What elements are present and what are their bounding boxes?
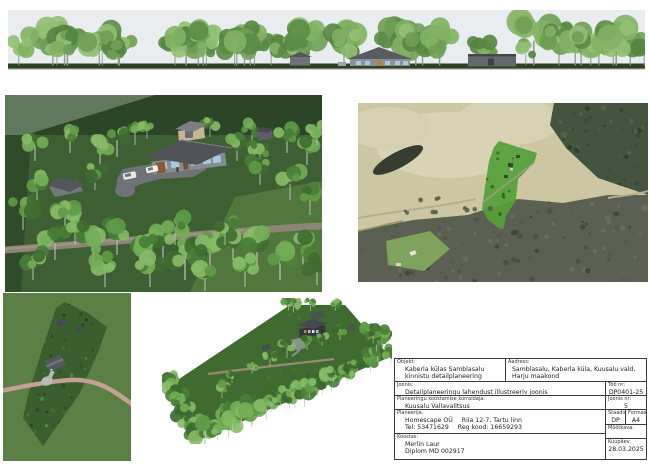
planeerija-company: Homescape OÜ (405, 417, 453, 425)
kuupaev-value: 28.03.2025 (608, 446, 644, 454)
titleblock-korraldaja-cell: Planeeringu koostamise korraldaja: Kuusa… (395, 396, 606, 410)
joonis-value: Detailplaneeringu lahendust illustreeriv… (397, 389, 603, 397)
site-plan-top-view (3, 293, 131, 461)
planeerija-address: Riia 12-7, Tartu linn (462, 417, 522, 425)
planeerija-line2: Tel: 53471629 Reg kood: 16659293 (397, 424, 603, 432)
titleblock-planeerija-cell: Planeerija: Homescape OÜ Riia 12-7, Tart… (395, 410, 606, 434)
aadress-line2: Harju maakond (508, 373, 644, 381)
koostas-name: Merlin Laur (397, 441, 603, 449)
aadress-line1: Samblasalu, Kaberla küla, Kuusalu vald, (508, 366, 644, 374)
titleblock-objekt-cell: Objekt: Kaberla külas Samblasalu kinnist… (395, 359, 506, 382)
titleblock-mootkava-cell: Mõõtkava: (606, 425, 646, 439)
axonometric-parcel-view (162, 298, 392, 444)
planeerija-tel: Tel: 53471629 (405, 424, 449, 432)
titleblock-staadium-cell: Staadium: DP (606, 410, 626, 425)
toonr-value: DP0401-25 (608, 389, 644, 397)
objekt-line1: Kaberla külas Samblasalu (397, 366, 503, 374)
titleblock-kuupaev-cell: Kuupäev: 28.03.2025 (606, 439, 646, 459)
plan-illustration-sheet: Objekt: Kaberla külas Samblasalu kinnist… (0, 0, 650, 474)
titleblock-joonisnr-cell: Joonis nr: 5 (606, 396, 646, 410)
formaat-value: A4 (628, 417, 644, 425)
koostas-cert: Diplom MD 002917 (397, 448, 603, 456)
staadium-value: DP (608, 417, 623, 425)
title-block: Objekt: Kaberla külas Samblasalu kinnist… (394, 358, 647, 460)
aerial-photo-view (358, 103, 648, 282)
korraldaja-value: Kuusalu Vallavalitsus (397, 403, 603, 411)
panorama-elevation-view (8, 10, 645, 78)
titleblock-joonis-cell: Joonis: Detailplaneeringu lahendust illu… (395, 382, 606, 396)
titleblock-formaat-cell: Formaat: A4 (626, 410, 646, 425)
planeerija-line1: Homescape OÜ Riia 12-7, Tartu linn (397, 417, 603, 425)
titleblock-koostas-cell: Koostas: Merlin Laur Diplom MD 002917 (395, 434, 606, 459)
joonisnr-value: 5 (608, 403, 644, 411)
titleblock-toonr-cell: Töö nr: DP0401-25 (606, 382, 646, 396)
mootkava-label: Mõõtkava: (608, 426, 644, 432)
formaat-label: Formaat: (628, 411, 644, 417)
titleblock-aadress-cell: Aadress: Samblasalu, Kaberla küla, Kuusa… (506, 359, 646, 382)
objekt-line2: kinnistu detailplaneering (397, 373, 503, 381)
perspective-3d-view (5, 95, 322, 292)
planeerija-reg: Reg kood: 16659293 (458, 424, 522, 432)
staadium-label: Staadium: (608, 411, 623, 417)
